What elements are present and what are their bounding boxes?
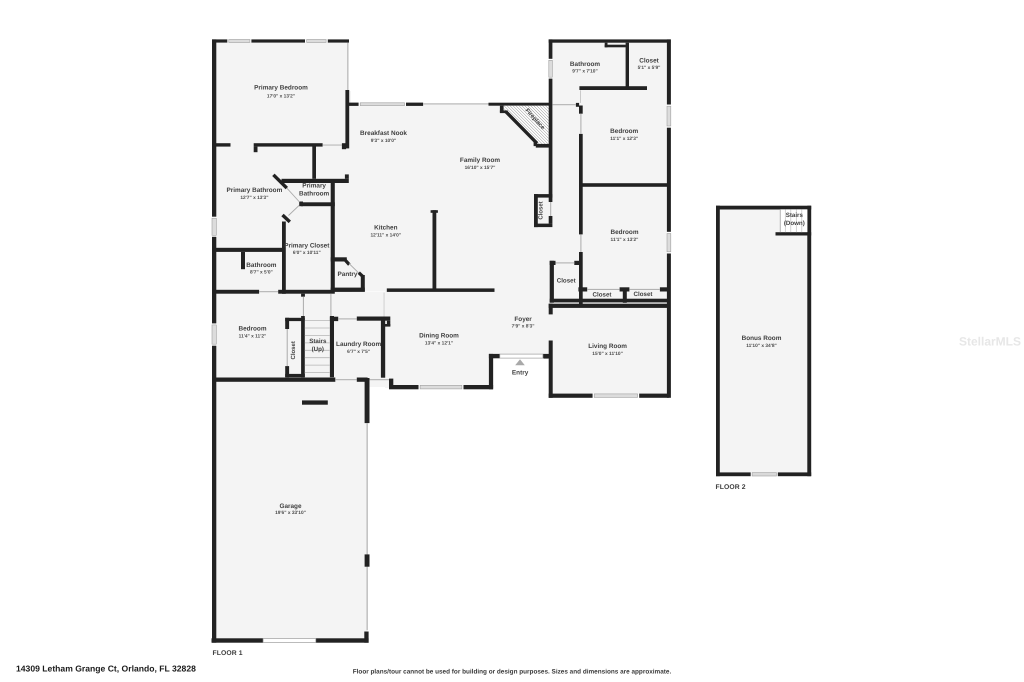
svg-text:Bedroom: Bedroom (238, 326, 266, 333)
svg-text:Pantry: Pantry (338, 271, 358, 278)
svg-text:Closet: Closet (634, 291, 653, 298)
svg-text:(Down): (Down) (784, 220, 805, 227)
svg-text:Closet: Closet (290, 341, 297, 359)
svg-text:Stairs: Stairs (309, 338, 327, 345)
svg-text:12'11" x 14'0": 12'11" x 14'0" (371, 232, 402, 238)
svg-text:9'3" x 10'0": 9'3" x 10'0" (371, 138, 397, 144)
svg-text:14309 Letham Grange Ct, Orland: 14309 Letham Grange Ct, Orlando, FL 3282… (16, 664, 196, 674)
svg-text:Primary Closet: Primary Closet (284, 243, 330, 250)
svg-text:Closet: Closet (593, 291, 612, 298)
svg-text:Bedroom: Bedroom (610, 229, 638, 236)
svg-text:7'9" x 8'3": 7'9" x 8'3" (512, 324, 535, 330)
svg-text:(Up): (Up) (312, 346, 324, 353)
svg-text:11'1" x 13'2": 11'1" x 13'2" (611, 237, 639, 243)
svg-text:5'1" x 5'9": 5'1" x 5'9" (638, 65, 661, 71)
svg-text:Primary Bedroom: Primary Bedroom (254, 85, 308, 92)
svg-text:Stairs: Stairs (786, 212, 804, 219)
svg-text:12'7" x 13'3": 12'7" x 13'3" (240, 195, 268, 201)
svg-text:Closet: Closet (639, 58, 659, 65)
svg-text:FLOOR 2: FLOOR 2 (716, 484, 746, 491)
svg-text:FLOOR 1: FLOOR 1 (213, 650, 243, 657)
svg-text:15'0" x 11'10": 15'0" x 11'10" (592, 351, 623, 357)
svg-text:Primary Bathroom: Primary Bathroom (227, 187, 283, 194)
svg-text:Family Room: Family Room (460, 157, 500, 164)
svg-text:Entry: Entry (512, 370, 529, 377)
svg-text:Bathroom: Bathroom (246, 262, 276, 269)
svg-text:19'6" x 33'10": 19'6" x 33'10" (275, 510, 306, 516)
svg-text:Kitchen: Kitchen (374, 225, 398, 232)
svg-text:Laundry Room: Laundry Room (336, 341, 381, 348)
svg-text:Bonus Room: Bonus Room (742, 335, 782, 342)
svg-text:11'4" x 11'2": 11'4" x 11'2" (239, 333, 267, 339)
svg-text:13'4" x 12'1": 13'4" x 12'1" (425, 340, 453, 346)
svg-text:9'7" x 7'10": 9'7" x 7'10" (572, 69, 598, 75)
svg-text:Bathroom: Bathroom (299, 191, 329, 198)
svg-text:Bathroom: Bathroom (570, 61, 600, 68)
svg-text:8'7" x 5'0": 8'7" x 5'0" (250, 269, 273, 275)
svg-text:Breakfast Nook: Breakfast Nook (360, 130, 407, 137)
svg-text:11'10" x 34'8": 11'10" x 34'8" (746, 343, 777, 349)
svg-text:Closet: Closet (538, 201, 545, 219)
svg-text:Living Room: Living Room (588, 343, 627, 350)
svg-text:17'0" x 13'2": 17'0" x 13'2" (267, 93, 295, 99)
svg-text:Floor plans/tour cannot be use: Floor plans/tour cannot be used for buil… (353, 669, 672, 676)
svg-text:Foyer: Foyer (514, 316, 532, 323)
svg-text:Garage: Garage (279, 503, 301, 510)
svg-text:6'7" x 7'5": 6'7" x 7'5" (347, 349, 370, 355)
svg-text:6'0" x 10'11": 6'0" x 10'11" (293, 250, 321, 256)
svg-text:Bedroom: Bedroom (610, 128, 638, 135)
svg-text:16'10" x 15'7": 16'10" x 15'7" (465, 165, 496, 171)
svg-text:Closet: Closet (557, 277, 576, 284)
svg-text:Dining Room: Dining Room (419, 333, 459, 340)
svg-text:11'1" x 12'3": 11'1" x 12'3" (610, 136, 638, 142)
svg-text:Primary: Primary (302, 183, 326, 190)
svg-text:StellarMLS: StellarMLS (959, 335, 1021, 349)
